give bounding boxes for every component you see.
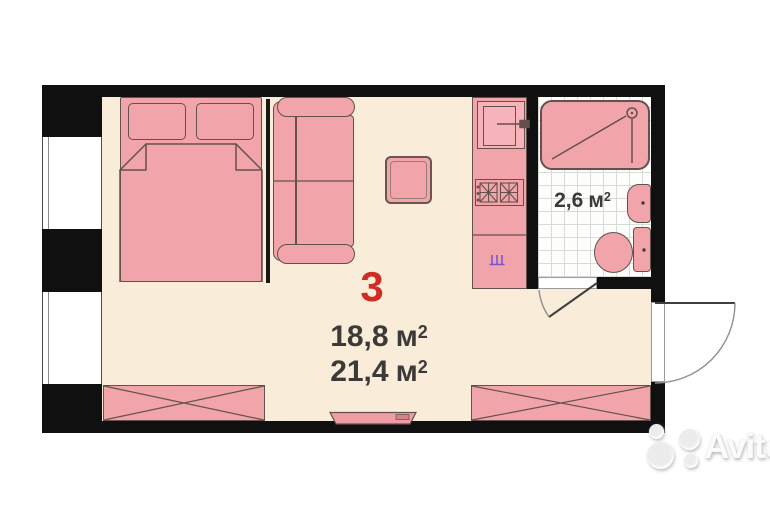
avito-logo-dot	[684, 454, 698, 468]
wall-bathroom-left	[527, 85, 538, 289]
fridge	[477, 101, 525, 149]
pillow-right	[196, 103, 254, 140]
pillow-left	[128, 103, 186, 140]
living-area-label: 18,8м2	[309, 322, 449, 352]
avito-logo-dot	[649, 424, 664, 439]
wardrobe-right	[471, 385, 651, 421]
entry-door-opening	[651, 302, 665, 382]
avito-logo-dot	[647, 442, 674, 469]
toilet-tank	[633, 227, 651, 272]
sofa-seat	[296, 115, 354, 247]
living-area-superscript: 2	[418, 322, 428, 342]
partition-wall	[266, 99, 270, 283]
total-area-label: 21,4м2	[309, 357, 449, 387]
window-frame-line	[48, 137, 49, 229]
sofa-backrest	[273, 101, 296, 261]
total-area-unit: м	[396, 355, 418, 388]
avito-logo-dot	[679, 429, 700, 450]
stove	[475, 179, 524, 206]
bathroom-area-unit: м	[588, 189, 604, 212]
fridge-inner-line	[483, 106, 516, 146]
bathroom-area-value: 2,6	[554, 189, 583, 212]
avito-wordmark: Avito	[704, 427, 770, 467]
living-area-value: 18,8	[330, 320, 388, 353]
toilet-bowl	[594, 232, 633, 273]
wall-left-bottom-corner	[42, 384, 102, 433]
bathroom-area-superscript: 2	[604, 190, 611, 204]
total-area-value: 21,4	[330, 355, 388, 388]
wall-left-top-corner	[42, 85, 102, 137]
bathroom-area-label: 2,6м2	[540, 190, 625, 211]
room-number: 3	[332, 266, 412, 308]
wall-left-middle	[42, 229, 102, 292]
floorplan-image: 3 18,8м2 21,4м2 2,6м2 Avito	[0, 0, 770, 510]
entry-door-arc	[655, 303, 735, 383]
sofa-armrest-top	[277, 97, 355, 117]
shower-tray	[540, 100, 650, 170]
washbasin	[627, 184, 651, 223]
living-area-unit: м	[396, 320, 418, 353]
bathroom-door-opening	[538, 277, 597, 289]
wardrobe-left	[103, 385, 265, 421]
window-upper	[42, 137, 102, 229]
wall-top	[42, 85, 665, 97]
window-frame-line	[48, 292, 49, 384]
coffee-table-inner-line	[390, 161, 427, 199]
wall-bottom	[96, 421, 665, 433]
sofa-armrest-bottom	[277, 244, 355, 264]
window-lower	[42, 292, 102, 384]
total-area-superscript: 2	[418, 357, 428, 377]
coffee-table	[385, 156, 432, 204]
